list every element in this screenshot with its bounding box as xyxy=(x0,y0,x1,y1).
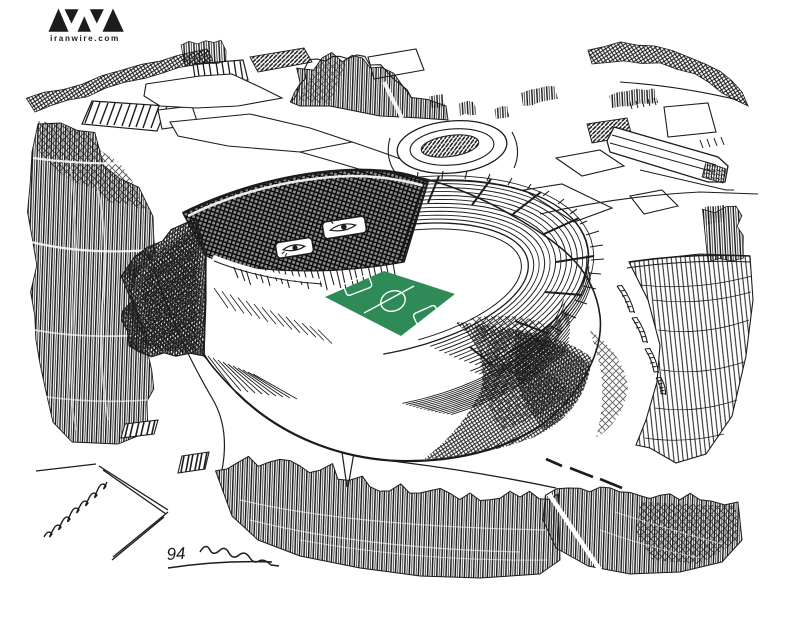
svg-text:iranwire.com: iranwire.com xyxy=(50,34,120,43)
svg-text:94: 94 xyxy=(166,544,186,564)
